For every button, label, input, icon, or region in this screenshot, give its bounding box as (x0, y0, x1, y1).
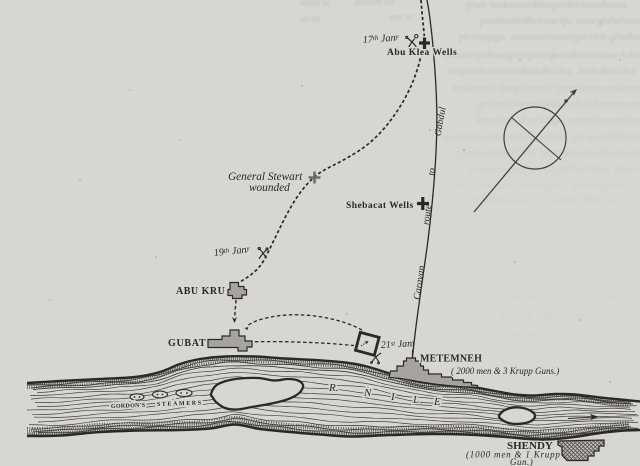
svg-text:bimepoti: bimepoti (533, 0, 570, 11)
svg-text:siseramehun: siseramehun (590, 115, 640, 126)
svg-text:cemunenun: cemunenun (478, 66, 526, 77)
svg-text:nuregocelub: nuregocelub (555, 32, 607, 43)
svg-text:nosepuhacen: nosepuhacen (442, 132, 497, 143)
svg-text:gusel: gusel (484, 329, 506, 340)
svg-text:resop: resop (572, 132, 595, 143)
svg-text:Shebacat Wells: Shebacat Wells (346, 201, 414, 211)
svg-text:dimoteheti: dimoteheti (614, 164, 640, 175)
svg-text:sedohedarom: sedohedarom (610, 50, 640, 61)
svg-text:denupeni: denupeni (468, 164, 507, 175)
svg-text:rebin: rebin (466, 195, 488, 206)
svg-text:helesucipu: helesucipu (528, 16, 573, 27)
svg-text:hilisapeta: hilisapeta (523, 180, 564, 191)
svg-text:cobeser: cobeser (607, 83, 640, 94)
svg-text:denum ali: denum ali (355, 0, 395, 8)
svg-text:duhuluma: duhuluma (599, 16, 640, 27)
svg-text:sertu: sertu (300, 14, 320, 25)
svg-text:nelanurilu: nelanurilu (453, 83, 497, 94)
svg-text:dolocah: dolocah (499, 311, 533, 322)
svg-text:nagoto: nagoto (497, 50, 526, 61)
svg-text:L: L (412, 394, 419, 406)
svg-text:to: to (426, 167, 438, 176)
svg-text:wounded: wounded (249, 182, 290, 194)
svg-text:R.: R. (328, 382, 338, 394)
svg-text:rumiburora: rumiburora (557, 83, 606, 94)
svg-text:rogabe: rogabe (584, 148, 614, 159)
svg-text:lebogono: lebogono (580, 292, 619, 303)
svg-text:magolamirir: magolamirir (500, 83, 554, 94)
svg-text:um re: um re (390, 12, 413, 23)
svg-text:Abu Klea Wells: Abu Klea Wells (387, 48, 457, 58)
svg-text:21st Jany: 21st Jany (381, 338, 416, 351)
svg-text:nenonehi: nenonehi (508, 329, 547, 340)
svg-text:sisideg: sisideg (543, 66, 572, 77)
svg-text:muta re: muta re (300, 0, 331, 9)
svg-text:gelare: gelare (543, 195, 570, 206)
svg-text:purim: purim (603, 180, 630, 191)
svg-text:N: N (363, 387, 372, 399)
svg-text:GUBAT: GUBAT (168, 338, 206, 349)
svg-text:GORDON'S: GORDON'S (111, 403, 146, 410)
svg-text:bupari: bupari (614, 148, 640, 159)
svg-text:dicimip: dicimip (591, 329, 623, 340)
svg-text:pusimemidi: pusimemidi (479, 16, 528, 27)
svg-text:ABU KRU: ABU KRU (176, 286, 225, 297)
svg-text:tibim: tibim (569, 0, 591, 11)
svg-text:piponel: piponel (587, 195, 620, 206)
svg-text:gibar: gibar (552, 292, 576, 303)
svg-text:gihuhaseni: gihuhaseni (609, 32, 640, 43)
svg-text:caguhome: caguhome (536, 311, 579, 322)
svg-text:sicel: sicel (580, 311, 599, 322)
svg-text:dubusudohib: dubusudohib (486, 195, 540, 206)
svg-text:gecopega: gecopega (553, 115, 593, 126)
svg-text:simomucet: simomucet (594, 99, 640, 110)
svg-text:cohabadib: cohabadib (503, 292, 547, 303)
svg-text:picecagigu: picecagigu (458, 32, 505, 43)
svg-text:lotopices: lotopices (476, 115, 514, 126)
svg-text:pisit: pisit (546, 132, 566, 143)
svg-text:sesuh: sesuh (552, 50, 575, 61)
svg-text:mutomatis: mutomatis (511, 32, 555, 43)
svg-text:nudamasec: nudamasec (490, 0, 538, 11)
svg-text:nitudut: nitudut (531, 99, 562, 110)
svg-text:digop: digop (543, 164, 567, 175)
svg-text:( 2000 men & 3 Krupp Guns.): ( 2000 men & 3 Krupp Guns.) (451, 366, 559, 376)
svg-text:cepubo: cepubo (468, 50, 498, 61)
svg-text:E: E (433, 396, 441, 408)
svg-text:puculas: puculas (572, 180, 606, 191)
svg-text:letasileh: letasileh (601, 66, 637, 77)
svg-text:piser: piser (465, 0, 488, 11)
svg-text:dumiled: dumiled (520, 115, 555, 126)
svg-text:dobabohatid: dobabohatid (616, 132, 640, 143)
svg-text:METEMNEH: METEMNEH (420, 354, 482, 365)
svg-text:nulutusa: nulutusa (591, 0, 627, 11)
svg-text:Gun.): Gun.) (510, 457, 533, 466)
svg-text:hurosu: hurosu (555, 329, 584, 340)
svg-text:henocam: henocam (574, 50, 612, 61)
svg-text:husogoha: husogoha (451, 180, 492, 191)
svg-text:gelepadahes: gelepadahes (477, 99, 530, 110)
svg-text:cibuhoduli: cibuhoduli (565, 164, 610, 175)
